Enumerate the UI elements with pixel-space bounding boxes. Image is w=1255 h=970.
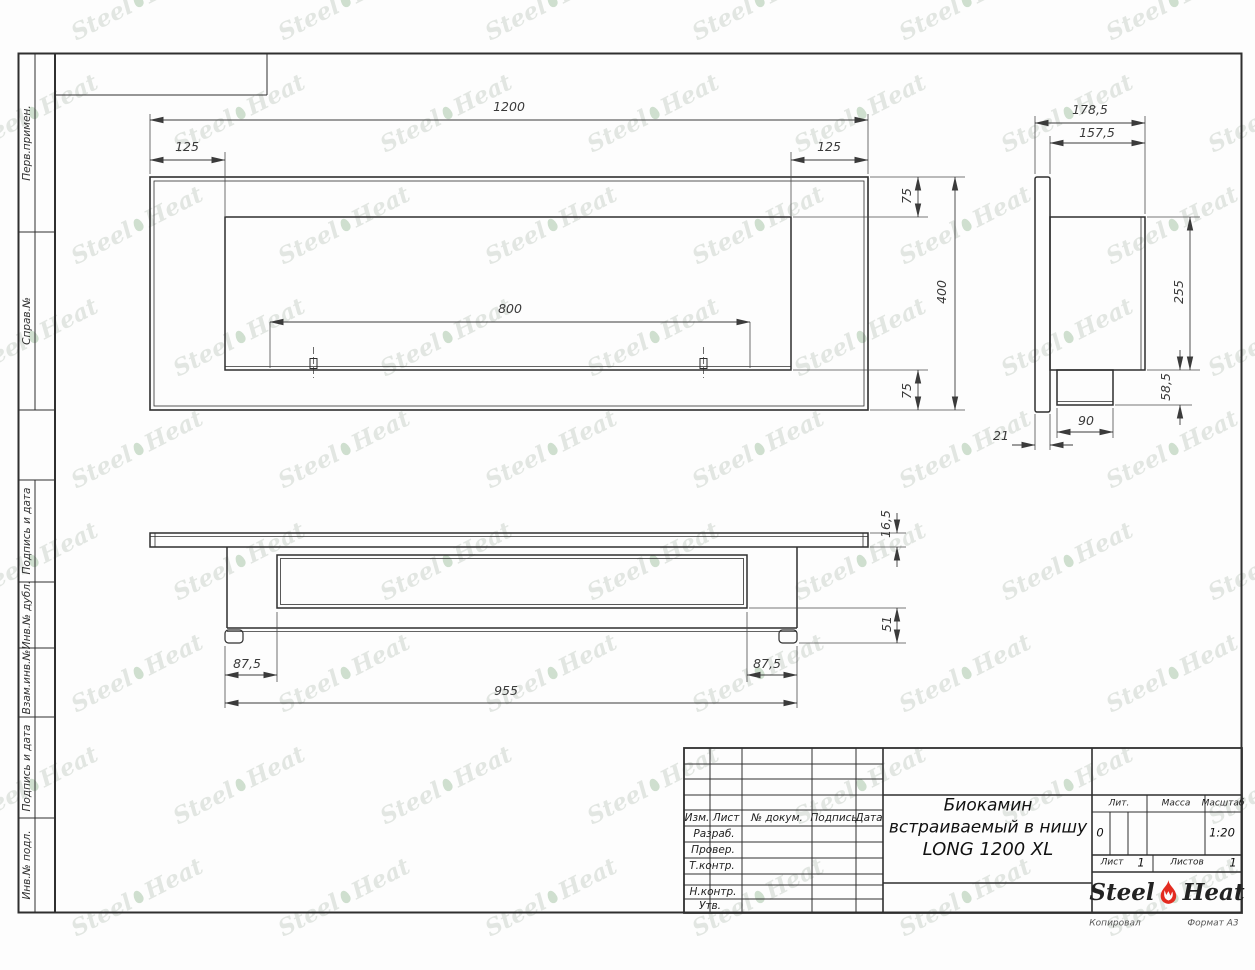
- foot-right: [779, 630, 797, 643]
- flame-icon: [1158, 878, 1180, 906]
- brand-logo-left: Steel: [1089, 879, 1154, 906]
- front-view: [150, 114, 965, 410]
- drawing-canvas: [0, 0, 1255, 970]
- bottom-view: [150, 513, 906, 708]
- front-extension-lines: [150, 114, 965, 410]
- brand-logo-right: Heat: [1183, 879, 1245, 906]
- brand-logo: Steel Heat: [1089, 878, 1244, 906]
- side-dimension-lines: [1012, 123, 1190, 445]
- drawing-sheet: SteelHeatSteelHeatSteelHeatSteelHeatStee…: [0, 0, 1255, 970]
- sheet-frame: [18, 53, 1242, 913]
- side-extension-lines: [1035, 116, 1200, 450]
- foot-left: [225, 630, 243, 643]
- bottom-extension-lines: [225, 533, 906, 708]
- side-view: [1012, 116, 1200, 450]
